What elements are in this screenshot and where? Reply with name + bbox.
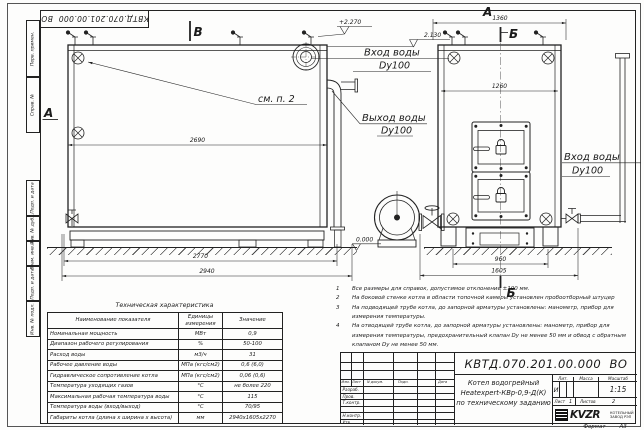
sig-row-utv: Утв.: [343, 421, 352, 425]
spec-row: Рабочее давление водыМПа (кгс/см2)0,6 (6…: [48, 360, 283, 371]
scale-header: Масштаб: [599, 377, 637, 381]
sig-header-list: Лист: [352, 381, 361, 385]
spec-col-value: Значение: [223, 313, 283, 329]
front-a-marker: А: [482, 5, 492, 19]
outlet-label: Выход воды: [362, 113, 426, 124]
outlet-leader: [332, 91, 360, 124]
sig-header-data: Дата: [438, 381, 447, 385]
spec-table-title: Техническая характеристика: [47, 302, 282, 312]
sig-header-podp: Подп.: [398, 381, 409, 385]
note-item: 3На подводящей трубе котла, до запорной …: [336, 304, 632, 323]
dim-front-width: 1360: [492, 15, 507, 22]
note-item: 1Все размеры для справок, допустимое отк…: [336, 285, 632, 294]
door-handle-icon: [474, 196, 490, 200]
outlet-pipe: [327, 79, 358, 247]
rear-inlet-pipe: [578, 54, 630, 224]
sheets-label: Листов: [580, 400, 596, 404]
frame-field-sprav-no: Справ. №: [26, 77, 41, 133]
spec-row: Диапазон рабочего регулирования%50-100: [48, 339, 283, 350]
mass-value: [574, 382, 599, 398]
lower-door: [472, 172, 530, 220]
section-b-top-marker: Б: [509, 27, 518, 41]
upper-door: [472, 122, 530, 172]
frame-field-podp-data-2: Подп. и дата: [26, 266, 41, 301]
spec-row: Максимальная рабочая температура воды°С1…: [48, 392, 283, 403]
sig-row-prov: Пров.: [343, 395, 355, 399]
product-line2: Heatexpert-КВр-0,9-Д(К): [455, 388, 552, 398]
small-valve-icon: [561, 209, 578, 224]
elevation-inlet: 2.130: [424, 32, 441, 39]
format-value: А3: [620, 424, 627, 430]
elevation-top: +2.270: [339, 19, 361, 26]
dim-front-overall: 1605: [491, 268, 506, 275]
spec-row: Номинальная мощностьМВт0,9: [48, 329, 283, 340]
inlet-right-dn: Dу100: [572, 166, 603, 177]
view-a-marker: А: [43, 106, 53, 120]
frame-field-podp-data-1: Подп. и дата: [26, 180, 41, 216]
see-note-leader: [88, 62, 256, 105]
spec-row: Гидравлическое сопротивление котлаМПа (к…: [48, 371, 283, 382]
dim-side-overall: 2940: [199, 268, 214, 275]
spec-table-block: Техническая характеристика Наименование …: [47, 302, 282, 424]
see-note-label: см. п. 2: [258, 94, 295, 105]
outlet-dn: Dу100: [381, 126, 412, 137]
dim-front-inner: 1260: [492, 83, 507, 90]
side-dimensions: [62, 145, 352, 281]
sheet-value: 1: [569, 399, 572, 405]
kvzr-logo-icon: [555, 409, 568, 421]
sig-row-razrab: Разраб.: [343, 388, 359, 392]
lit-mass-scale: Лит. Масса Масштаб И 1:15 Лист 1 Листов …: [553, 375, 637, 425]
gate-valve-icon: [419, 206, 444, 231]
flue-fan: [375, 191, 420, 247]
door-lock-icon: [496, 188, 506, 203]
format-label: Формат: [583, 424, 605, 430]
ash-pan: [466, 228, 534, 247]
spec-col-name: Наименование показателя: [48, 313, 179, 329]
ground-hatch-left: [47, 247, 357, 255]
inlet-left-label: Вход воды: [364, 48, 420, 59]
doc-number: КВТД.070.201.00.000 ВО: [454, 353, 637, 375]
product-line1: Котел водогрейный: [455, 378, 552, 388]
dim-side-body: 2690: [190, 137, 205, 144]
product-line3: по техническому заданию: [455, 398, 552, 408]
spec-row: Температура воды (вход/выход)°С70/95: [48, 402, 283, 413]
spec-row: Расход водым3/ч31: [48, 350, 283, 361]
product-title: Котел водогрейный Heatexpert-КВр-0,9-Д(К…: [454, 375, 553, 425]
brand-area: KVZR КОТЕЛЬНЫЙ ЗАВОД РЭП: [553, 406, 637, 426]
view-b-marker: В: [194, 25, 203, 39]
spec-row: Температура уходящих газов°Сне более 220: [48, 381, 283, 392]
sig-header-izm: Изм.: [342, 381, 350, 385]
scale-value: 1:15: [599, 382, 637, 398]
door-lock-icon: [496, 140, 506, 155]
boiler-side-view: [66, 31, 358, 247]
note-item: 4На отводящей трубе котла, до запорной а…: [336, 322, 632, 350]
inlet-left-dn: Dу100: [379, 61, 410, 72]
spec-table: Наименование показателя Единицы измерени…: [47, 312, 283, 424]
inlet-right-label: Вход воды: [564, 152, 620, 163]
brand-subtitle: КОТЕЛЬНЫЙ ЗАВОД РЭП: [610, 411, 634, 420]
sheets-value: 2: [612, 399, 615, 405]
note-item: 2На боковой стенке котла в области топоч…: [336, 294, 632, 303]
drawing-sheet: 2690 2770 2940 1360 1260 960 1605 В А А …: [0, 0, 644, 430]
sig-header-ndokum: N докум.: [367, 381, 383, 385]
sig-row-tkontr: Т.контр.: [343, 401, 361, 405]
notes-list: 1Все размеры для справок, допустимое отк…: [336, 285, 632, 350]
ground-hatch-right: [424, 247, 612, 255]
dim-front-base: 960: [495, 256, 507, 263]
spec-row: Габариты котла (длина х ширина х высота)…: [48, 413, 283, 424]
format-note: Формат А3: [560, 424, 644, 430]
signature-grid: Изм. Лист N докум. Подп. Дата Разраб. Пр…: [341, 353, 454, 425]
lit-value: И: [553, 382, 560, 398]
elevation-zero: 0.000: [356, 237, 373, 244]
door-handle-icon: [474, 147, 490, 151]
frame-field-inv-podl: Инв. № подл.: [26, 301, 41, 337]
smoke-flange-icon: [291, 42, 321, 72]
sheet-label: Лист: [555, 400, 566, 404]
brand-name: KVZR: [570, 409, 600, 421]
frame-field-vzam-inv: Взам. инв. №: [26, 241, 41, 266]
sig-row-nkontr: Н.контр.: [343, 414, 362, 418]
frame-field-perv-primen: Перв. примен.: [26, 20, 41, 77]
safety-valve-icons-front: [443, 31, 546, 45]
frame-field-inv-dubl: Инв. № дубл.: [26, 216, 41, 241]
top-stamp: КВТД.070.201.00.000 ВО: [40, 10, 149, 28]
title-block: Изм. Лист N докум. Подп. Дата Разраб. Пр…: [340, 352, 636, 424]
spec-col-units: Единицы измерения: [179, 313, 223, 329]
